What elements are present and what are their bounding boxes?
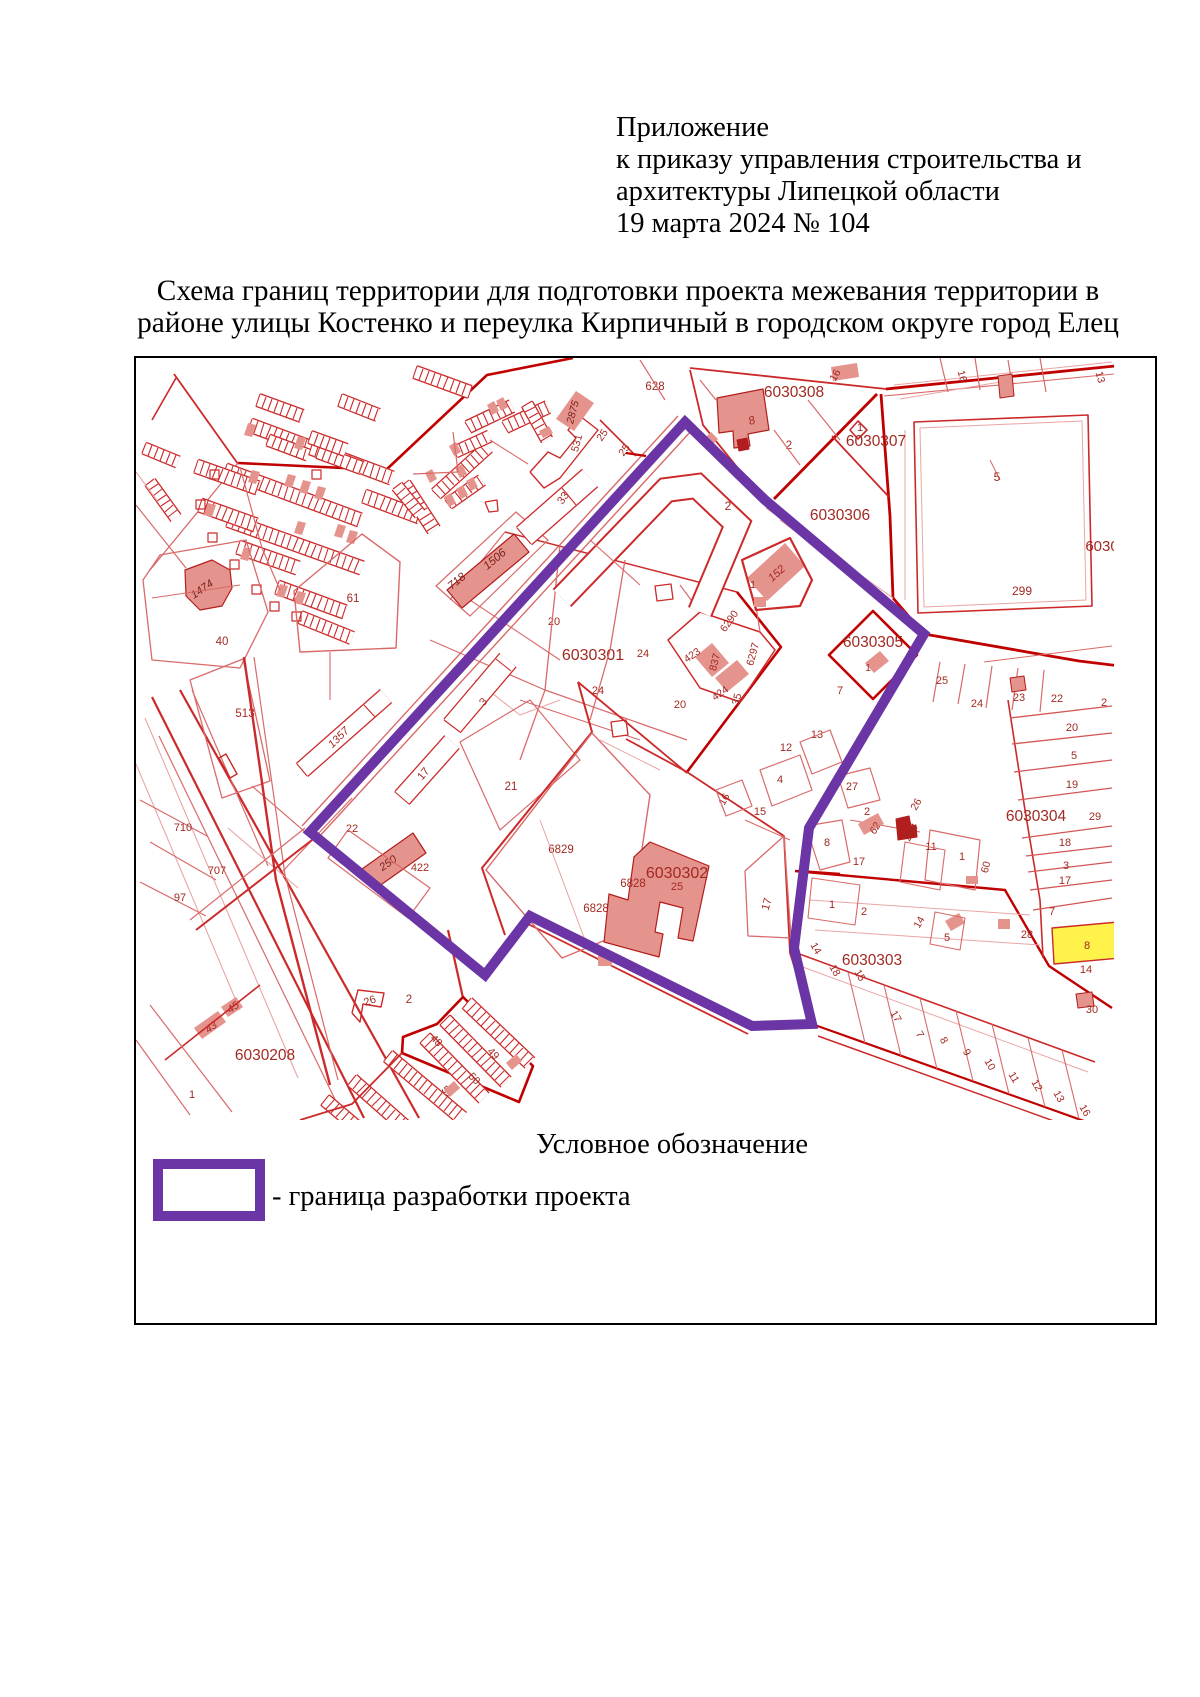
svg-text:3: 3 — [1063, 860, 1069, 872]
svg-text:1: 1 — [959, 851, 965, 863]
svg-text:17: 17 — [1059, 875, 1071, 887]
svg-text:25: 25 — [671, 881, 683, 893]
svg-text:6030306: 6030306 — [810, 507, 870, 524]
svg-text:4: 4 — [777, 774, 783, 786]
svg-text:Условное обозначение: Условное обозначение — [536, 1129, 808, 1160]
svg-text:14: 14 — [1080, 964, 1092, 976]
svg-text:20: 20 — [674, 699, 686, 711]
svg-text:13: 13 — [1050, 1088, 1066, 1104]
svg-text:6030307: 6030307 — [846, 433, 906, 450]
svg-text:707: 707 — [208, 865, 226, 877]
svg-text:26: 26 — [908, 796, 924, 812]
svg-text:1: 1 — [829, 899, 835, 911]
svg-text:8: 8 — [1084, 940, 1090, 952]
svg-text:24: 24 — [971, 698, 983, 710]
svg-text:6030303: 6030303 — [842, 952, 902, 969]
svg-text:15: 15 — [754, 806, 766, 818]
svg-text:1: 1 — [189, 1089, 195, 1101]
svg-text:2: 2 — [406, 994, 412, 1006]
svg-text:35: 35 — [730, 692, 745, 707]
svg-text:5: 5 — [994, 470, 1001, 484]
svg-text:10: 10 — [981, 1056, 997, 1072]
svg-text:6297: 6297 — [744, 641, 762, 667]
svg-text:6030304: 6030304 — [1006, 808, 1067, 825]
svg-text:20: 20 — [1066, 722, 1078, 734]
svg-text:628: 628 — [645, 381, 664, 393]
svg-text:30: 30 — [1086, 1004, 1098, 1016]
svg-text:18: 18 — [1059, 837, 1071, 849]
svg-text:60: 60 — [979, 860, 994, 875]
svg-text:6290: 6290 — [718, 608, 741, 634]
svg-text:6030308: 6030308 — [764, 384, 824, 401]
svg-text:19: 19 — [1066, 779, 1078, 791]
svg-text:28: 28 — [1021, 929, 1033, 941]
svg-text:1: 1 — [865, 662, 871, 674]
svg-text:17: 17 — [853, 856, 865, 868]
svg-text:8: 8 — [824, 837, 830, 849]
svg-text:61: 61 — [347, 593, 360, 605]
svg-text:6030301: 6030301 — [562, 647, 624, 664]
svg-text:1: 1 — [750, 579, 756, 591]
svg-text:2: 2 — [725, 499, 732, 513]
svg-text:27: 27 — [846, 781, 858, 793]
svg-text:12: 12 — [1028, 1077, 1044, 1093]
svg-text:6828: 6828 — [583, 903, 609, 915]
svg-text:- граница разработки проекта: - граница разработки проекта — [272, 1181, 631, 1212]
svg-text:5: 5 — [1071, 750, 1077, 762]
svg-text:16: 16 — [1076, 1102, 1092, 1118]
svg-text:21: 21 — [505, 781, 518, 793]
svg-text:6030: 6030 — [1085, 538, 1118, 555]
svg-text:40: 40 — [216, 636, 229, 648]
svg-text:6828: 6828 — [620, 878, 646, 890]
svg-text:23: 23 — [1013, 692, 1025, 704]
svg-text:2: 2 — [864, 806, 870, 818]
svg-text:12: 12 — [780, 742, 792, 754]
svg-text:20: 20 — [548, 616, 560, 628]
svg-text:422: 422 — [411, 862, 429, 874]
svg-text:7: 7 — [837, 685, 843, 697]
svg-text:13: 13 — [1093, 370, 1108, 385]
svg-text:14: 14 — [807, 940, 823, 956]
svg-text:6030302: 6030302 — [646, 865, 708, 882]
svg-text:8: 8 — [937, 1035, 950, 1046]
svg-text:15: 15 — [851, 967, 867, 983]
svg-text:7: 7 — [1049, 906, 1055, 918]
svg-text:11: 11 — [1006, 1070, 1022, 1086]
svg-text:6030305: 6030305 — [843, 634, 903, 651]
svg-text:17: 17 — [760, 897, 775, 912]
svg-text:97: 97 — [174, 892, 186, 904]
svg-text:25: 25 — [936, 675, 948, 687]
svg-text:1: 1 — [857, 422, 863, 434]
svg-text:2: 2 — [861, 906, 867, 918]
svg-text:5: 5 — [944, 932, 950, 944]
svg-text:6030208: 6030208 — [235, 1047, 295, 1064]
svg-text:14: 14 — [911, 914, 927, 930]
svg-text:24: 24 — [637, 648, 649, 660]
svg-text:299: 299 — [1012, 584, 1032, 598]
svg-text:6829: 6829 — [548, 844, 574, 856]
svg-text:710: 710 — [174, 822, 192, 834]
svg-text:22: 22 — [1051, 693, 1063, 705]
svg-text:29: 29 — [1089, 811, 1101, 823]
svg-text:7: 7 — [913, 1029, 926, 1040]
